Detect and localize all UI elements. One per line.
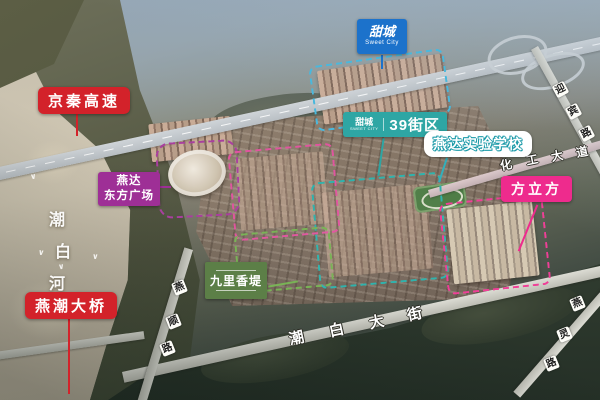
bird-icon: ∨ — [92, 252, 99, 261]
bird-icon: ∨ — [29, 172, 37, 182]
river-name-char: 河 — [49, 270, 65, 294]
river-name-char: 潮 — [49, 206, 65, 230]
callout-line-sweet-city — [381, 55, 383, 69]
road-name-huagong-avenue-char: 大 — [549, 146, 564, 165]
road-name-chaobai-avenue-char: 潮 — [287, 326, 306, 350]
river-name-char: 白 — [55, 238, 71, 262]
block39-brand-en: SWEET CITY — [350, 127, 378, 131]
sweet-city-logo: 甜城 Sweet City — [357, 19, 407, 54]
label-yanda-experimental-school: 燕达实验学校 — [424, 131, 532, 157]
sweet-city-logo-cn: 甜城 — [369, 26, 395, 40]
label-jingqin-expressway: 京秦高速 — [38, 87, 130, 114]
jiuli-logo-text: 九里香堤 — [210, 272, 262, 289]
label-yanda-oriental-plaza: 燕达 东方广场 — [98, 172, 160, 206]
block39-brand: 甜城 SWEET CITY — [350, 118, 384, 131]
plaza-label-line2: 东方广场 — [104, 189, 154, 204]
bird-icon: ∨ — [37, 248, 45, 258]
aerial-masterplan-map: 潮 白 河 ∨ ∨ ∨ ∨ 潮 白 大 街 化 工 大 道 燕 顺 路 燕 灵 … — [0, 0, 600, 400]
road-name-huagong-avenue-char: 化 — [498, 155, 513, 174]
logo-ornament — [216, 290, 256, 291]
road-name-chaobai-avenue-char: 白 — [327, 318, 346, 342]
label-yanchao-bridge: 燕潮大桥 — [25, 292, 117, 319]
jiuli-xiangdi-logo: 九里香堤 — [205, 262, 267, 299]
callout-line-bridge — [68, 318, 70, 394]
zone-outline-oriental-plaza — [155, 139, 241, 219]
bird-icon: ∨ — [58, 262, 65, 272]
sweet-city-logo-en: Sweet City — [365, 40, 399, 47]
logo-ornament — [216, 270, 256, 271]
plaza-label-line1: 燕达 — [117, 174, 142, 189]
label-fang-cube: 方立方 — [501, 176, 572, 202]
